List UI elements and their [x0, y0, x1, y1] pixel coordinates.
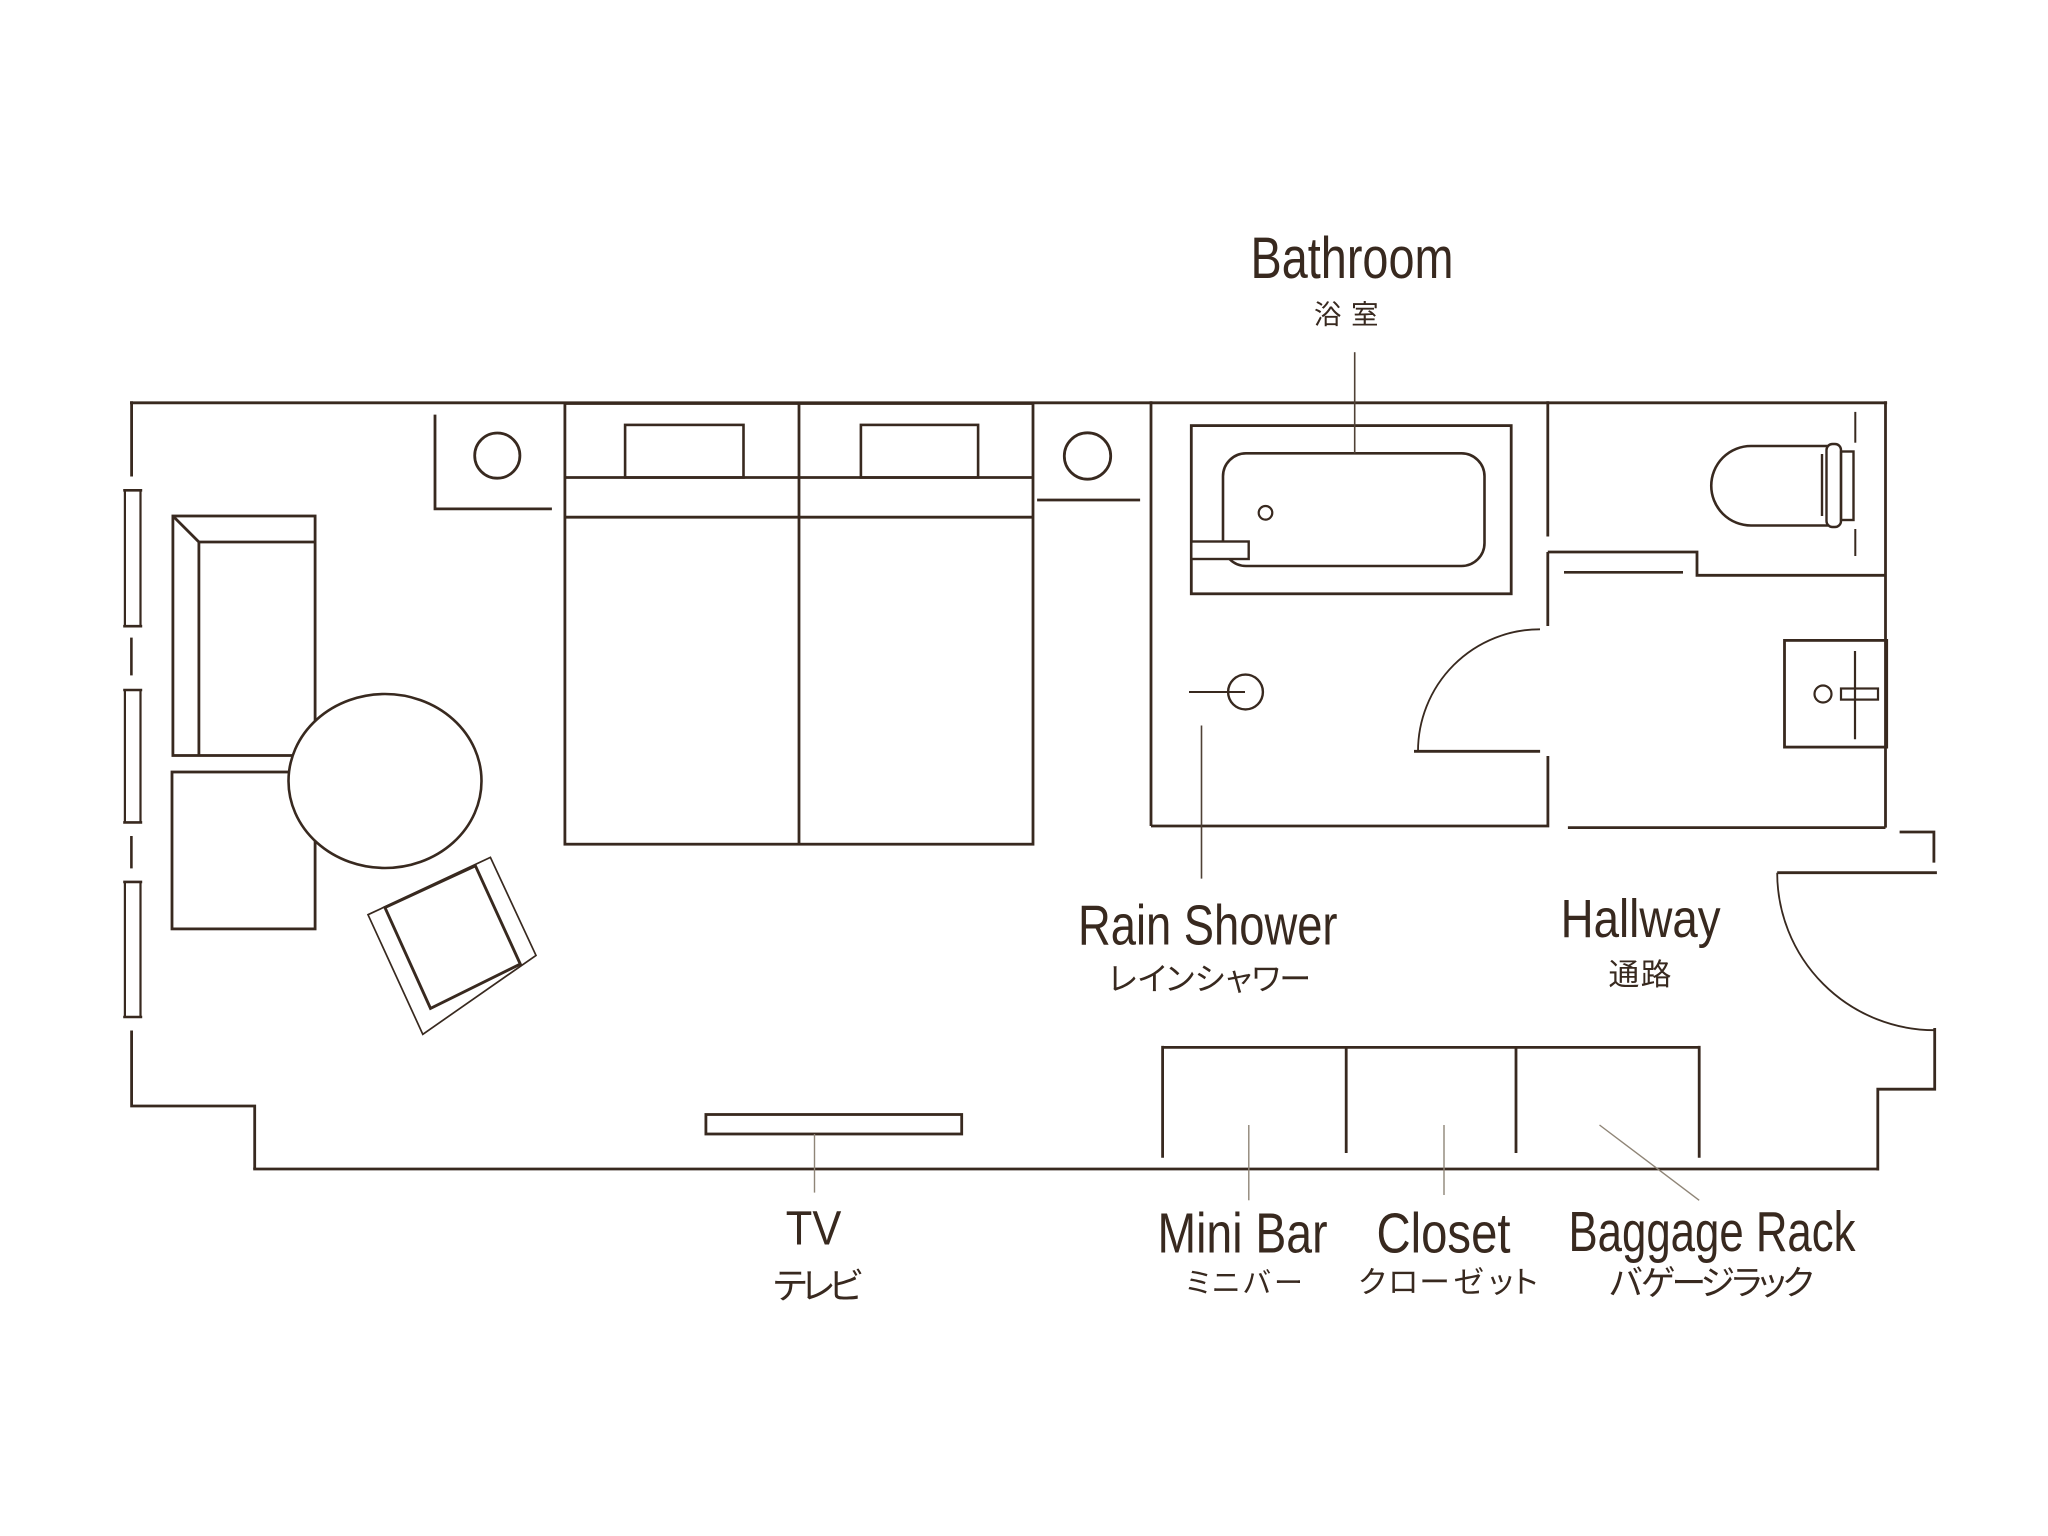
svg-text:Hallway: Hallway — [1561, 889, 1721, 949]
svg-text:Closet: Closet — [1377, 1202, 1511, 1266]
svg-text:Rain Shower: Rain Shower — [1078, 894, 1338, 958]
svg-text:TV: TV — [786, 1202, 842, 1256]
svg-text:Baggage Rack: Baggage Rack — [1569, 1200, 1856, 1264]
svg-text:Bathroom: Bathroom — [1251, 226, 1454, 291]
svg-text:Mini Bar: Mini Bar — [1158, 1202, 1328, 1266]
